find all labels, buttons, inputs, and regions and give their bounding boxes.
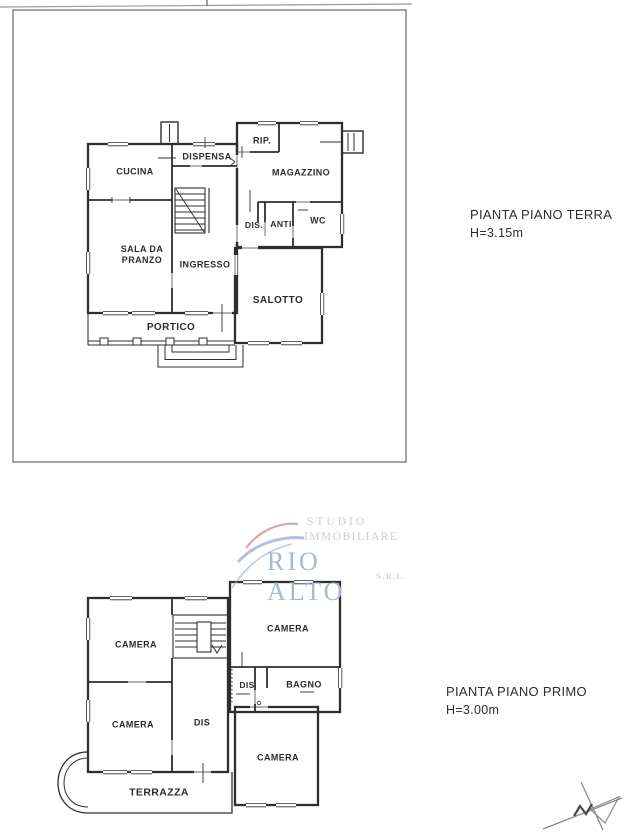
room-label-cucina: CUCINA (116, 167, 153, 178)
first-floor-title: PIANTA PIANO PRIMO (446, 683, 587, 701)
room-label-dis-west: DIS (194, 718, 210, 729)
room-label-magazzino: MAGAZZINO (272, 168, 330, 179)
room-label-dispensa: DISPENSA (182, 152, 231, 163)
staircase-first (173, 615, 228, 658)
first-floor-caption: PIANTA PIANO PRIMO H=3.00m (446, 683, 587, 719)
first-floor-plan (58, 580, 342, 813)
room-label-camera-se: CAMERA (257, 753, 299, 764)
room-label-bagno: BAGNO (286, 680, 322, 691)
entry-steps (158, 345, 243, 367)
room-label-portico: PORTICO (147, 322, 195, 334)
ground-floor-height: H=3.15m (470, 224, 612, 242)
ground-floor-title: PIANTA PIANO TERRA (470, 206, 612, 224)
scan-edge-line (0, 0, 412, 7)
watermark-swoosh (232, 524, 304, 588)
site-boundary (13, 10, 406, 462)
room-label-sala-da-pranzo: SALA DA PRANZO (121, 244, 163, 266)
scanned-floor-plan-page: CUCINA DISPENSA RIP. MAGAZZINO SALA DA P… (0, 0, 629, 833)
room-label-ingresso: INGRESSO (180, 260, 231, 271)
room-label-anti: ANTI (270, 219, 291, 229)
room-label-salotto: SALOTTO (253, 295, 303, 307)
room-label-camera-ne: CAMERA (267, 624, 309, 635)
room-label-terrazza: TERRAZZA (129, 787, 189, 800)
terrace-outline (58, 752, 232, 813)
ground-floor-caption: PIANTA PIANO TERRA H=3.15m (470, 206, 612, 242)
room-label-camera-nw: CAMERA (115, 640, 157, 651)
staircase-ground (175, 188, 209, 233)
room-label-dis-ground: DIS. (245, 220, 263, 230)
room-label-camera-sw: CAMERA (112, 720, 154, 731)
north-arrow-icon (543, 782, 622, 830)
first-floor-height: H=3.00m (446, 701, 587, 719)
room-label-dis-center: DIS (239, 680, 254, 690)
room-label-wc: WC (310, 216, 326, 227)
room-label-rip: RIP. (253, 136, 271, 147)
